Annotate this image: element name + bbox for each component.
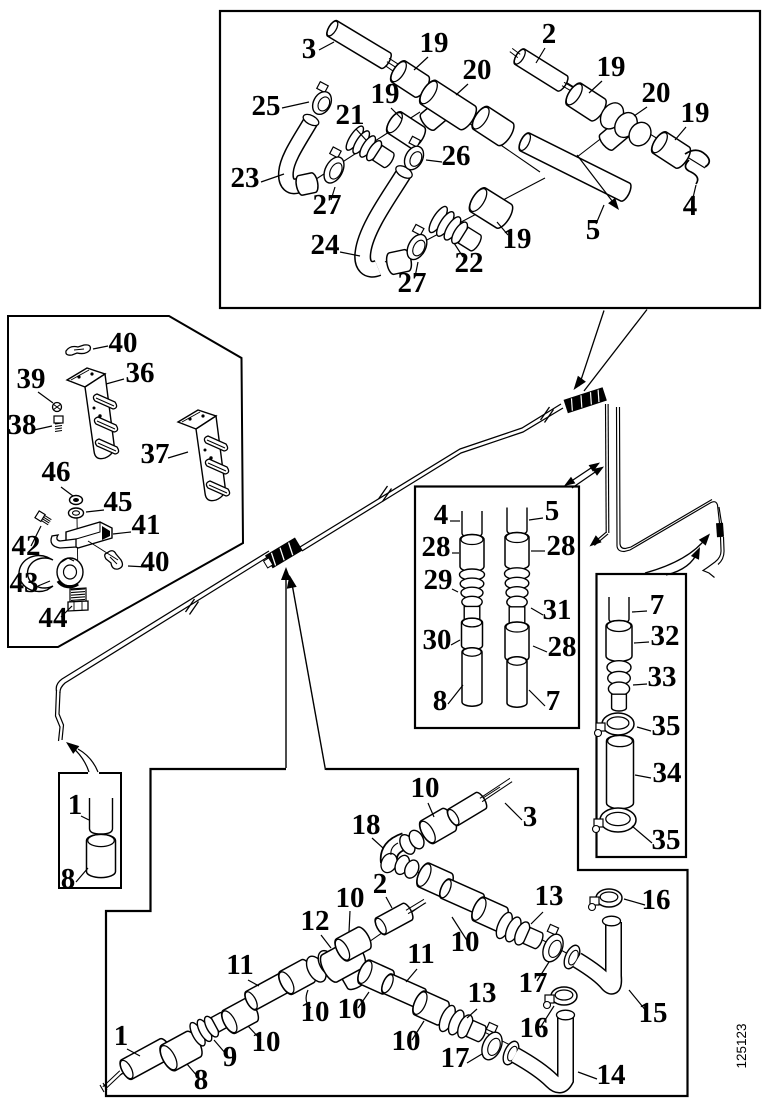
svg-text:10: 10: [338, 993, 367, 1025]
svg-text:19: 19: [597, 51, 626, 83]
svg-text:35: 35: [652, 824, 681, 856]
svg-text:10: 10: [301, 996, 330, 1028]
svg-text:35: 35: [652, 710, 681, 742]
svg-text:10: 10: [411, 772, 440, 804]
svg-text:18: 18: [352, 809, 381, 841]
svg-text:5: 5: [545, 495, 560, 527]
svg-text:15: 15: [639, 997, 668, 1029]
svg-text:39: 39: [17, 363, 46, 395]
svg-text:11: 11: [407, 938, 434, 970]
svg-text:22: 22: [455, 247, 484, 279]
svg-text:12: 12: [301, 905, 330, 937]
svg-text:28: 28: [547, 530, 576, 562]
svg-text:16: 16: [642, 884, 671, 916]
svg-text:20: 20: [463, 54, 492, 86]
svg-text:7: 7: [546, 685, 561, 717]
svg-text:2: 2: [542, 18, 557, 50]
svg-text:2: 2: [373, 868, 388, 900]
svg-text:32: 32: [651, 620, 680, 652]
svg-text:1: 1: [114, 1020, 129, 1052]
svg-text:45: 45: [104, 486, 133, 518]
svg-text:43: 43: [10, 567, 39, 599]
svg-text:31: 31: [543, 594, 572, 626]
svg-text:24: 24: [311, 229, 340, 261]
svg-text:46: 46: [42, 456, 71, 488]
svg-text:26: 26: [442, 140, 471, 172]
svg-text:25: 25: [252, 90, 281, 122]
svg-text:28: 28: [422, 531, 451, 563]
svg-text:10: 10: [252, 1026, 281, 1058]
svg-text:14: 14: [597, 1059, 626, 1091]
svg-text:13: 13: [535, 880, 564, 912]
svg-text:34: 34: [653, 757, 682, 789]
svg-text:16: 16: [520, 1012, 549, 1044]
svg-text:4: 4: [434, 499, 449, 531]
svg-text:27: 27: [313, 189, 342, 221]
svg-text:7: 7: [650, 589, 665, 621]
svg-text:28: 28: [548, 631, 577, 663]
svg-text:23: 23: [231, 162, 260, 194]
svg-text:9: 9: [223, 1041, 238, 1073]
svg-text:1: 1: [68, 789, 83, 821]
svg-text:10: 10: [392, 1025, 421, 1057]
svg-text:20: 20: [642, 77, 671, 109]
svg-text:8: 8: [433, 685, 448, 717]
svg-text:3: 3: [302, 33, 317, 65]
svg-text:30: 30: [423, 624, 452, 656]
svg-text:8: 8: [194, 1064, 209, 1096]
svg-text:8: 8: [61, 863, 76, 895]
svg-text:41: 41: [132, 509, 161, 541]
svg-text:10: 10: [336, 882, 365, 914]
svg-text:38: 38: [8, 409, 37, 441]
svg-text:37: 37: [141, 438, 170, 470]
svg-text:44: 44: [39, 602, 68, 634]
svg-text:21: 21: [336, 99, 365, 131]
svg-text:19: 19: [420, 27, 449, 59]
svg-text:19: 19: [503, 223, 532, 255]
svg-text:13: 13: [468, 977, 497, 1009]
svg-text:27: 27: [398, 267, 427, 299]
svg-text:19: 19: [371, 78, 400, 110]
svg-text:40: 40: [141, 546, 170, 578]
svg-text:40: 40: [109, 327, 138, 359]
svg-text:4: 4: [683, 190, 698, 222]
svg-text:125123: 125123: [734, 1023, 749, 1068]
svg-text:10: 10: [451, 926, 480, 958]
svg-text:17: 17: [441, 1042, 470, 1074]
svg-text:19: 19: [681, 97, 710, 129]
svg-text:29: 29: [424, 564, 453, 596]
svg-text:3: 3: [523, 801, 538, 833]
svg-text:11: 11: [226, 949, 253, 981]
svg-text:33: 33: [648, 661, 677, 693]
svg-text:36: 36: [126, 357, 155, 389]
